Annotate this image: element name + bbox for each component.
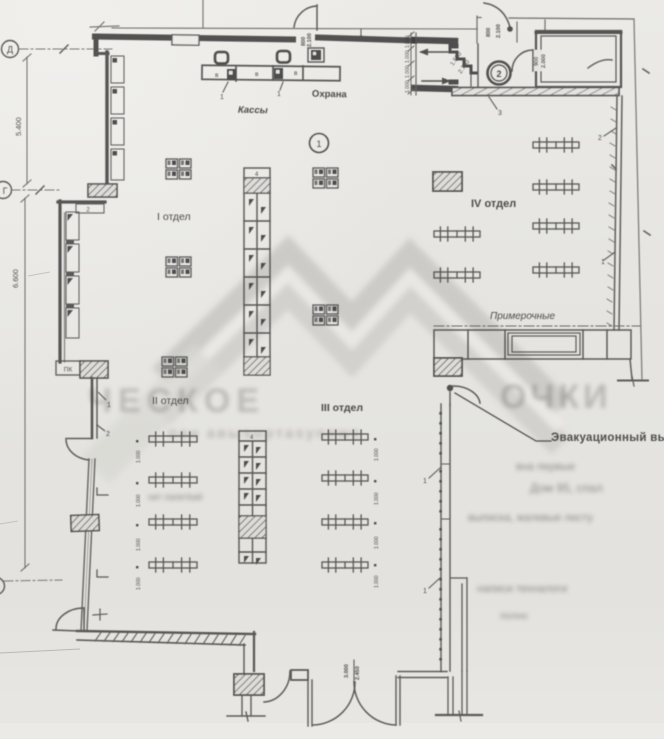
svg-text:в: в bbox=[255, 71, 259, 78]
svg-text:Д: Д bbox=[7, 45, 13, 55]
svg-text:полно: полно bbox=[500, 611, 528, 622]
svg-text:2: 2 bbox=[598, 135, 602, 142]
svg-text:3.000: 3.000 bbox=[344, 664, 350, 678]
svg-text:6.600: 6.600 bbox=[11, 269, 20, 288]
svg-text:нет папетbalt: нет папетbalt bbox=[148, 492, 203, 502]
svg-text:в: в bbox=[294, 70, 298, 77]
svg-text:2.100: 2.100 bbox=[307, 33, 313, 47]
svg-text:Примерочные: Примерочные bbox=[490, 311, 555, 322]
svg-text:Охрана: Охрана bbox=[312, 89, 348, 101]
svg-text:1.000: 1.000 bbox=[405, 65, 411, 78]
svg-text:1.000: 1.000 bbox=[374, 448, 380, 461]
svg-text:3: 3 bbox=[498, 110, 502, 117]
svg-text:5.400: 5.400 bbox=[14, 117, 23, 136]
svg-text:1.000: 1.000 bbox=[374, 492, 380, 505]
svg-text:800: 800 bbox=[486, 28, 492, 37]
svg-text:1.000: 1.000 bbox=[405, 35, 411, 48]
svg-text:I отдел: I отдел bbox=[157, 211, 191, 223]
svg-text:в: в bbox=[215, 72, 219, 79]
svg-text:1: 1 bbox=[220, 94, 224, 101]
svg-text:1.000: 1.000 bbox=[136, 450, 142, 463]
svg-text:II отдел: II отдел bbox=[152, 395, 189, 407]
svg-text:2: 2 bbox=[496, 69, 501, 79]
svg-text:1.000: 1.000 bbox=[405, 80, 411, 93]
svg-text:Кассы: Кассы bbox=[238, 105, 268, 117]
svg-text:1.000: 1.000 bbox=[374, 536, 380, 549]
svg-text:900: 900 bbox=[534, 57, 540, 66]
svg-text:Г: Г bbox=[3, 186, 8, 196]
svg-text:выписка, жалквые листу: выписка, жалквые листу bbox=[468, 512, 593, 524]
svg-text:вна первые: вна первые bbox=[516, 461, 575, 473]
svg-text:написи техналоги: написи техналоги bbox=[477, 583, 567, 595]
svg-text:Дом 95, спал: Дом 95, спал bbox=[530, 481, 603, 495]
svg-text:1.000: 1.000 bbox=[136, 494, 142, 507]
svg-text:ПК: ПК bbox=[64, 367, 73, 374]
svg-text:2.000: 2.000 bbox=[541, 54, 547, 68]
svg-text:ОЧКИ: ОЧКИ bbox=[500, 378, 612, 416]
svg-text:2.450: 2.450 bbox=[355, 666, 361, 680]
svg-text:1.000: 1.000 bbox=[405, 50, 411, 63]
svg-text:1.000: 1.000 bbox=[136, 538, 142, 551]
svg-text:1: 1 bbox=[423, 478, 427, 485]
svg-text:III отдел: III отдел bbox=[321, 402, 363, 414]
svg-text:1.000: 1.000 bbox=[374, 575, 380, 588]
svg-text:2: 2 bbox=[106, 431, 110, 438]
svg-text:1.000: 1.000 bbox=[136, 577, 142, 590]
svg-text:1: 1 bbox=[316, 139, 321, 149]
svg-text:1: 1 bbox=[423, 588, 427, 595]
svg-text:2.100: 2.100 bbox=[496, 24, 502, 38]
svg-text:IV отдел: IV отдел bbox=[471, 198, 516, 210]
svg-text:1: 1 bbox=[107, 402, 111, 409]
svg-text:Эвакуационный вых: Эвакуационный вых bbox=[551, 432, 664, 444]
svg-text:1: 1 bbox=[601, 259, 605, 266]
svg-text:1: 1 bbox=[277, 91, 281, 98]
